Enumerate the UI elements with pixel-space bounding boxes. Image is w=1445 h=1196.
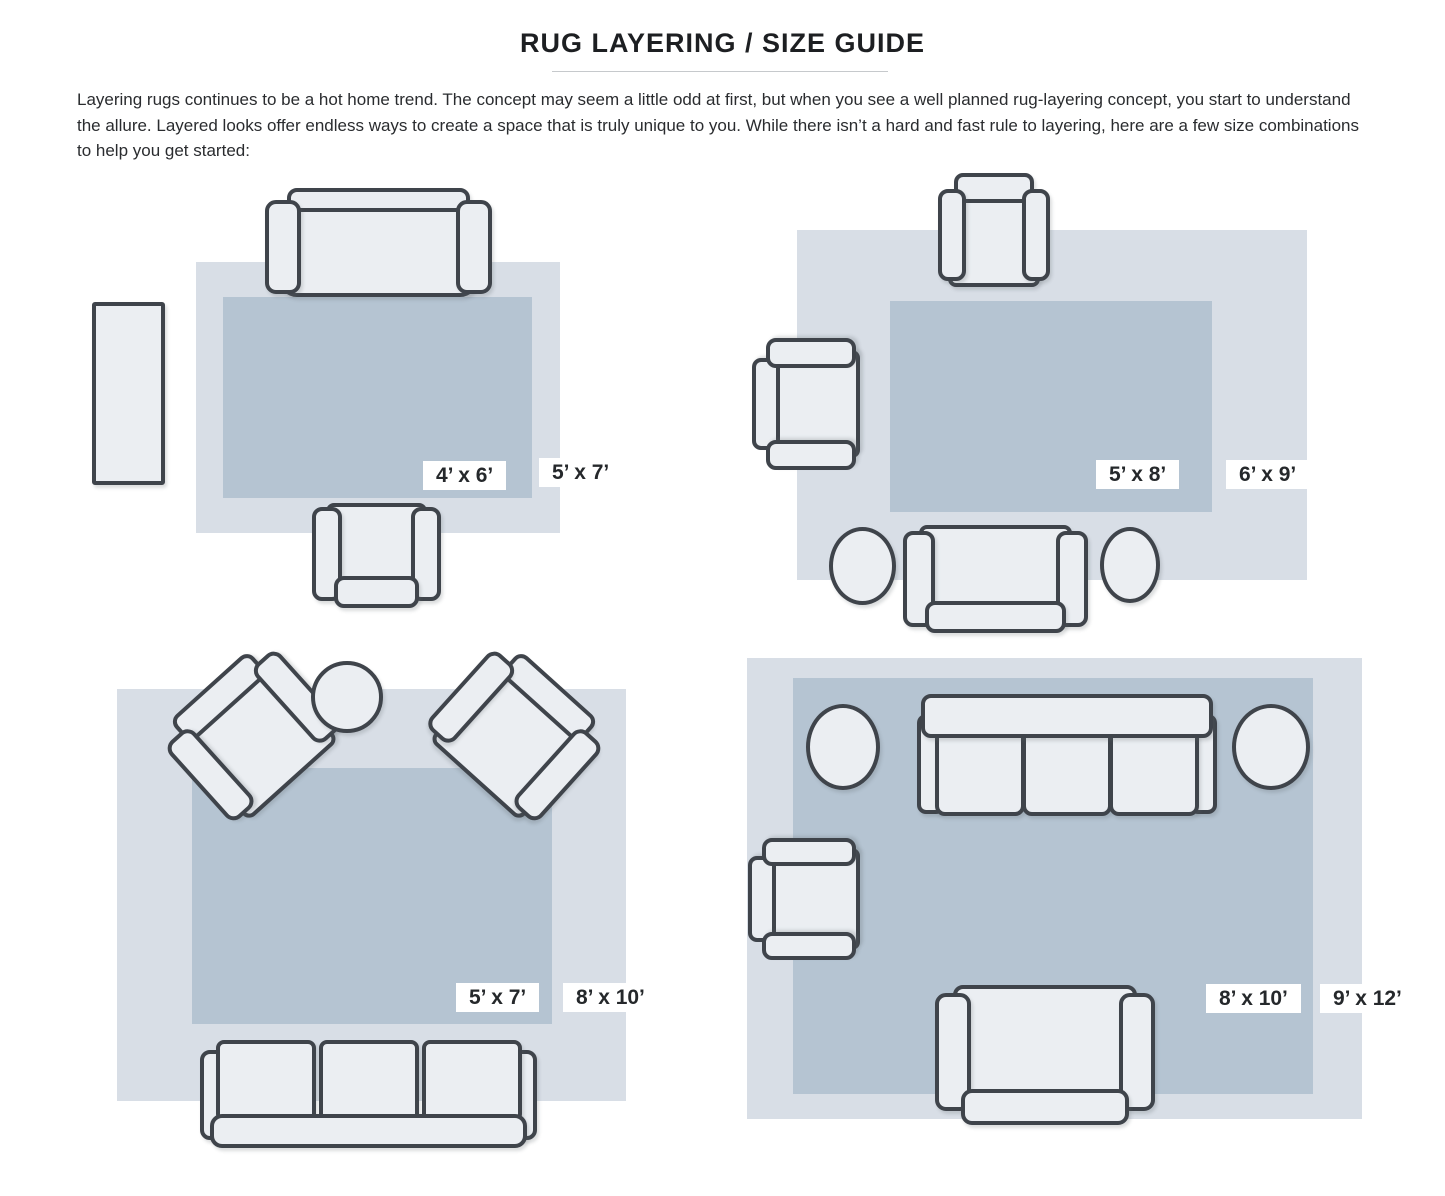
size-label-8x10: 8’ x 10’ — [1206, 984, 1301, 1013]
loveseat-seat — [953, 985, 1137, 1101]
armchair-arm — [762, 932, 856, 960]
size-label-9x12: 9’ x 12’ — [1320, 984, 1415, 1013]
armchair — [748, 838, 860, 960]
sofa-cushion — [216, 1040, 316, 1122]
loveseat — [935, 985, 1155, 1125]
size-label-5x8: 5’ x 8’ — [1096, 460, 1179, 489]
armchair — [752, 338, 860, 470]
console-table-top — [92, 302, 165, 485]
round-side-table-top — [829, 527, 896, 605]
armchair-arm — [762, 838, 856, 866]
console-table — [92, 302, 165, 485]
round-side-table-top — [806, 704, 880, 790]
sofa-back — [921, 694, 1213, 738]
sofa-arm — [265, 200, 301, 294]
sofa — [265, 188, 492, 297]
loveseat-back — [925, 601, 1066, 633]
rug-size-guide-infographic: RUG LAYERING / SIZE GUIDE Layering rugs … — [0, 0, 1445, 1196]
title-divider — [552, 71, 888, 72]
size-label-8x10: 8’ x 10’ — [563, 983, 658, 1012]
round-side-table — [311, 661, 383, 733]
round-side-table — [1232, 704, 1310, 790]
round-side-table — [829, 527, 896, 605]
round-side-table — [1100, 527, 1160, 603]
three-seat-sofa — [917, 694, 1217, 824]
size-label-6x9: 6’ x 9’ — [1226, 460, 1309, 489]
round-side-table-top — [1232, 704, 1310, 790]
size-label-4x6: 4’ x 6’ — [423, 461, 506, 490]
size-label-5x7: 5’ x 7’ — [539, 458, 622, 487]
armchair — [938, 173, 1050, 287]
sofa-seat — [279, 208, 478, 297]
sofa-arm — [456, 200, 492, 294]
round-side-table — [806, 704, 880, 790]
armchair-arm — [938, 189, 966, 281]
size-label-5x7: 5’ x 7’ — [456, 983, 539, 1012]
armchair — [312, 503, 441, 608]
sofa-cushion — [422, 1040, 522, 1122]
sofa-cushion — [319, 1040, 419, 1122]
armchair-back — [334, 576, 419, 608]
loveseat-back — [961, 1089, 1129, 1125]
round-side-table-top — [1100, 527, 1160, 603]
armchair-arm — [1022, 189, 1050, 281]
intro-paragraph: Layering rugs continues to be a hot home… — [77, 87, 1375, 164]
round-side-table-top — [311, 661, 383, 733]
armchair-arm — [766, 338, 856, 368]
loveseat — [903, 525, 1088, 633]
three-seat-sofa — [200, 1040, 537, 1148]
armchair-arm — [766, 440, 856, 470]
page-title: RUG LAYERING / SIZE GUIDE — [0, 28, 1445, 59]
sofa-back — [210, 1114, 527, 1148]
